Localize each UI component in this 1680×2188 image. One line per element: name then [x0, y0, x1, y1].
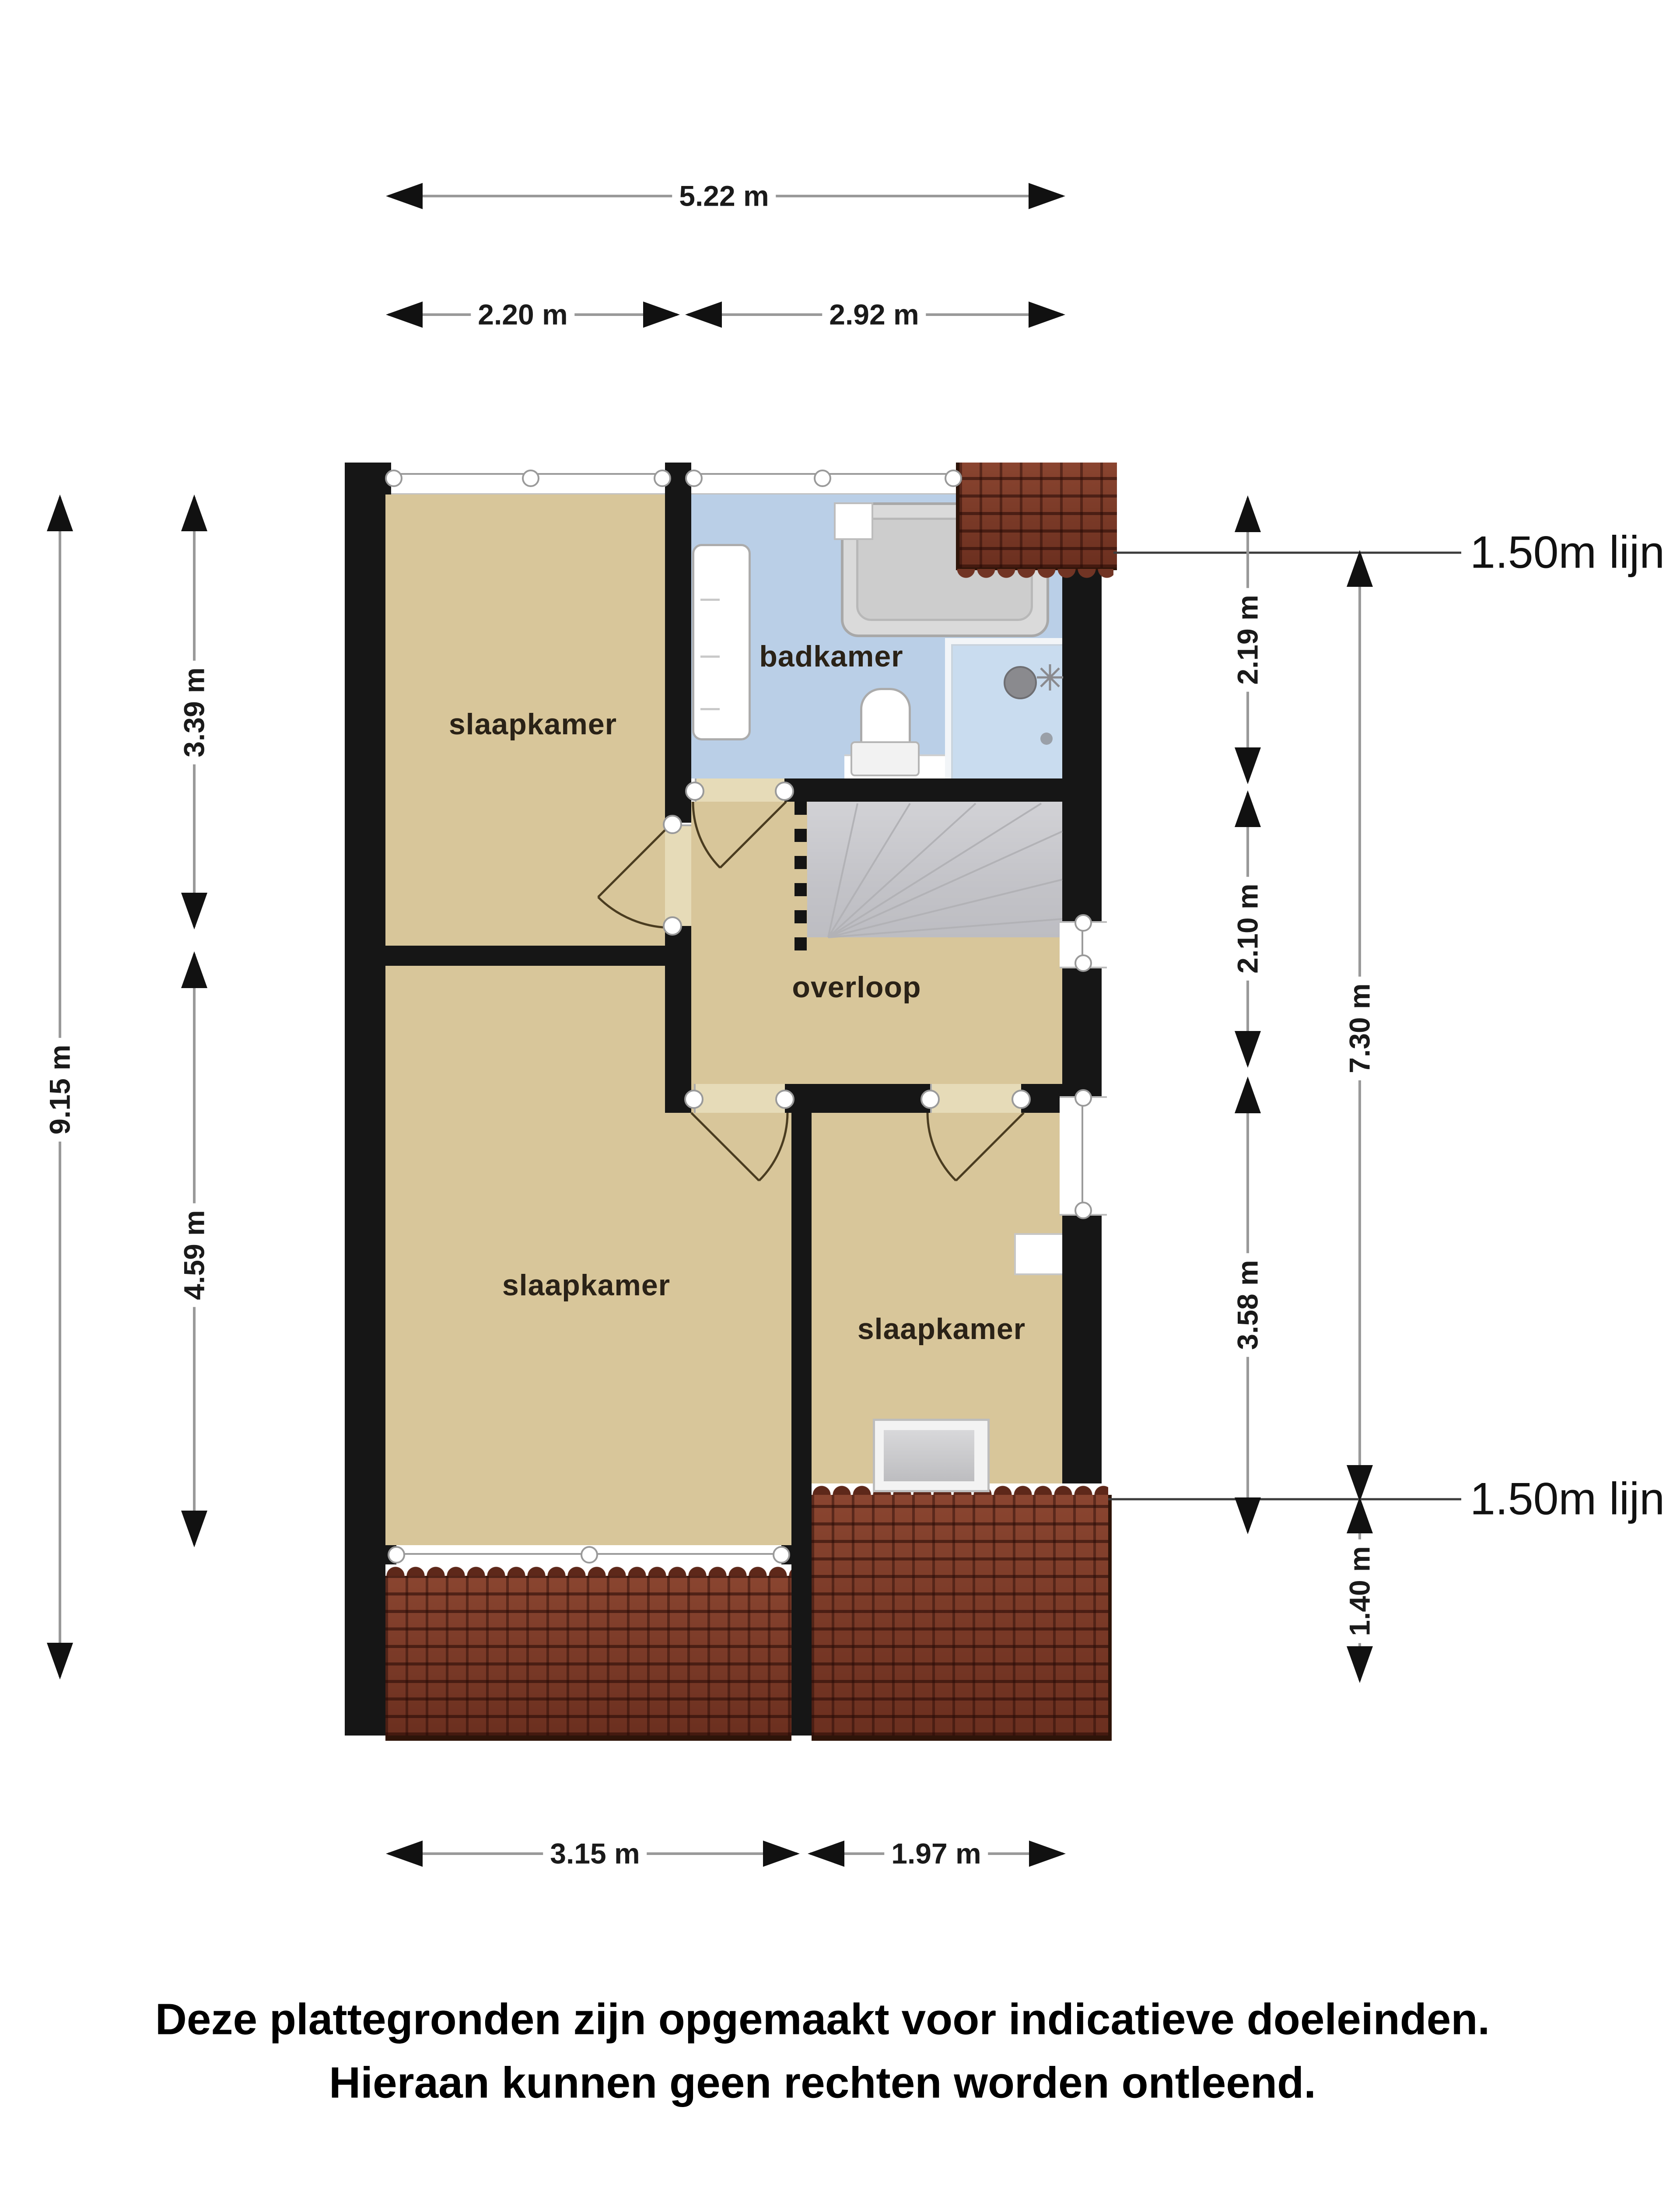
label-slaapkamer-top-left: slaapkamer [449, 707, 617, 741]
label-slaapkamer-bottom-left: slaapkamer [502, 1268, 670, 1302]
dim-left-lower: 4.59 m [178, 1203, 210, 1307]
dim-top-left: 2.20 m [471, 299, 574, 331]
dim-bottom-left: 3.15 m [543, 1838, 647, 1870]
dim-right-middle: 2.10 m [1232, 877, 1264, 980]
dim-right-total: 7.30 m [1344, 976, 1376, 1080]
floorplan: 5.22 m 2.20 m 2.92 m 9.15 m 3.39 m 4.59 … [0, 0, 1680, 2188]
dimension-lines [60, 196, 1360, 1854]
dim-left-total: 9.15 m [44, 1038, 76, 1141]
dim-right-upper: 2.19 m [1232, 588, 1264, 691]
height-line-label-bottom: 1.50m lijn [1470, 1473, 1665, 1525]
label-slaapkamer-bottom-right: slaapkamer [857, 1312, 1025, 1346]
stair-treads [828, 803, 1062, 937]
dim-bottom-right: 1.97 m [884, 1838, 988, 1870]
dim-top-total: 5.22 m [672, 180, 776, 212]
label-badkamer: badkamer [759, 639, 903, 673]
dim-right-lower: 3.58 m [1232, 1253, 1264, 1357]
dim-top-right: 2.92 m [822, 299, 926, 331]
height-leader-lines [1108, 553, 1461, 1499]
dim-right-roof: 1.40 m [1344, 1539, 1376, 1643]
disclaimer-line-2: Hieraan kunnen geen rechten worden ontle… [329, 2058, 1316, 2108]
height-line-label-top: 1.50m lijn [1470, 527, 1665, 579]
label-overloop: overloop [792, 970, 921, 1004]
faucet-icon [1004, 664, 1063, 745]
dim-left-upper: 3.39 m [178, 660, 210, 764]
frame-markers [386, 470, 1091, 1563]
disclaimer-line-1: Deze plattegronden zijn opgemaakt voor i… [155, 1995, 1490, 2045]
